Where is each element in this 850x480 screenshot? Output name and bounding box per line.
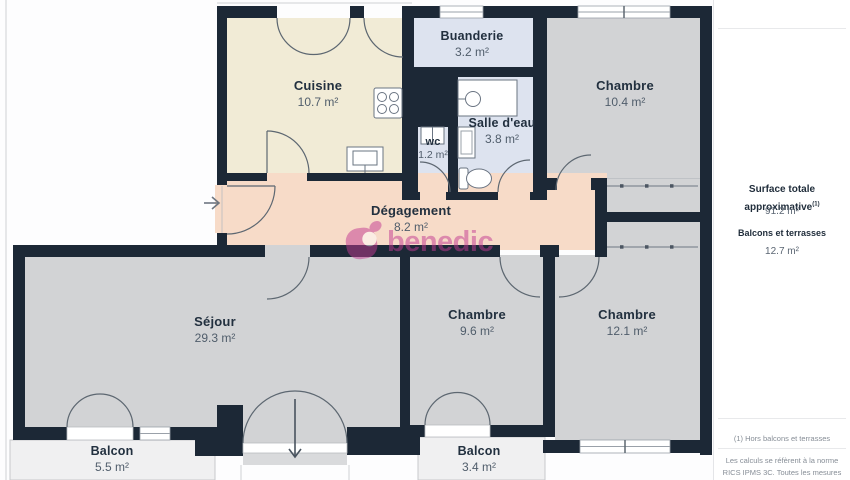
sidebar-divider — [718, 28, 846, 29]
toilet-icon — [459, 168, 492, 189]
floor-chambre-3 — [555, 255, 700, 440]
floor-sejour-ext — [241, 427, 347, 443]
washbasin-icon — [458, 80, 517, 116]
kitchen-sink-icon — [347, 147, 383, 173]
balconies-value: 12.7 m² — [765, 246, 799, 257]
disclaimer-text: Les calculs se réfèrent à la norme RICS … — [714, 455, 850, 480]
sidebar-divider — [718, 448, 846, 449]
room-label-chambre-1: Chambre 10.4 m² — [596, 78, 654, 109]
summary-sidebar: Surface totale approximative(1) 91.2 m² … — [713, 0, 850, 480]
room-label-wc: wc 1.2 m² — [418, 136, 448, 161]
balconies-block: Balcons et terrasses — [714, 223, 850, 241]
balconies-label: Balcons et terrasses — [738, 228, 826, 238]
stove-icon — [374, 88, 402, 118]
threshold-balcon-2 — [425, 425, 490, 437]
threshold-balcon-1 — [67, 427, 133, 440]
room-label-chambre-2: Chambre 9.6 m² — [448, 307, 506, 338]
balconies-value-block: 12.7 m² — [714, 241, 850, 259]
room-label-balcon-2: Balcon 3.4 m² — [458, 444, 501, 474]
footnote-text: (1) Hors balcons et terrasses — [734, 434, 830, 443]
room-label-buanderie: Buanderie 3.2 m² — [441, 29, 504, 59]
room-label-chambre-3: Chambre 12.1 m² — [598, 307, 656, 338]
floor-entry-threshold — [215, 185, 227, 233]
footnote-block: (1) Hors balcons et terrasses — [714, 428, 850, 446]
room-label-sejour: Séjour 29.3 m² — [194, 314, 236, 345]
room-label-cuisine: Cuisine 10.7 m² — [294, 78, 342, 109]
floor-chambre-2 — [410, 255, 543, 425]
sidebar-divider — [718, 418, 846, 419]
surface-total-value-block: 91.2 m² — [714, 201, 850, 219]
floorplan-page: Cuisine 10.7 m² Buanderie 3.2 m² Salle d… — [0, 0, 850, 480]
room-label-degagement: Dégagement 8.2 m² — [371, 203, 451, 234]
room-label-balcon-1: Balcon 5.5 m² — [91, 444, 134, 474]
room-label-salle-eau: Salle d'eau 3.8 m² — [468, 116, 535, 146]
surface-total-value: 91.2 m² — [765, 206, 799, 217]
